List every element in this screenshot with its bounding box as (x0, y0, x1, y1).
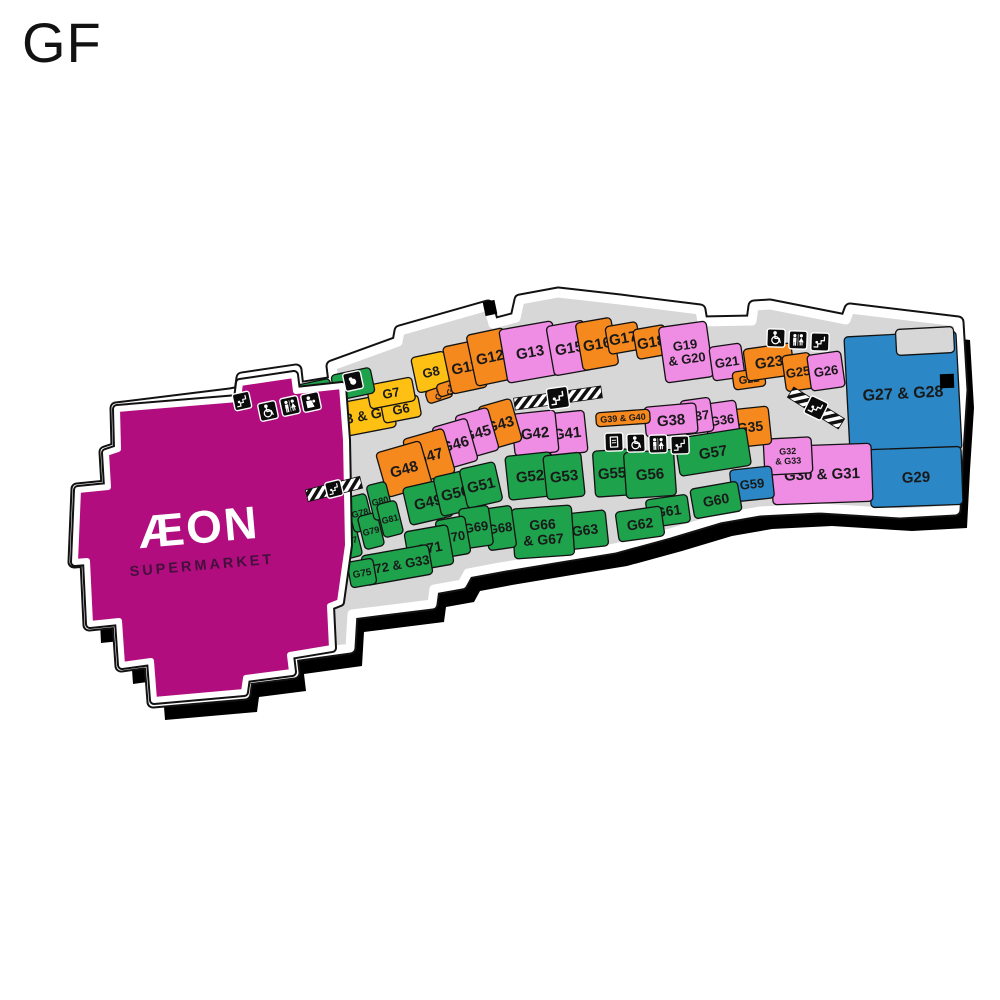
unit-label-G38: G38 (656, 411, 686, 430)
escalator-icon (324, 479, 343, 498)
unit-label-G29: G29 (902, 469, 931, 487)
wheelchair-icon (767, 329, 786, 348)
unit-G38: G38 (644, 403, 698, 437)
unit-G66-G67: G66& G67 (511, 505, 574, 559)
aeon-logo-text: ÆON (136, 496, 261, 558)
wheelchair-icon (627, 434, 646, 453)
entrance-mark (940, 374, 954, 388)
floor-map: G1G2G3 & G5G6G7G8G9G10G11G12G13G15G16G17… (0, 0, 1000, 1000)
unit-label-G52: G52 (515, 467, 545, 487)
aeon-logo: ÆONSUPERMARKET (124, 495, 275, 580)
unit-label-G56: G56 (635, 465, 664, 484)
escalator-icon (811, 333, 830, 352)
escalator-icon (546, 386, 570, 410)
unit-label-G53: G53 (549, 467, 579, 487)
unit-label-G63: G63 (571, 521, 599, 540)
escalator-icon (232, 391, 252, 411)
unit-label-G55: G55 (597, 464, 626, 483)
floor-plan-page: GF G1G2G3 & G5G6G7G8G9G10G11G12G13G15G16… (0, 0, 1000, 1000)
unit-notch (895, 327, 954, 356)
unit-label-G42: G42 (520, 424, 550, 444)
unit-label-G59: G59 (739, 475, 765, 492)
unit-G75: G75 (347, 558, 377, 588)
wheelchair-icon (257, 400, 278, 421)
unit-G56: G56 (623, 449, 676, 498)
toilets-icon (649, 435, 668, 454)
unit-G53: G53 (543, 452, 585, 500)
water-fountain-icon (605, 433, 624, 452)
escalator-icon (671, 436, 690, 455)
unit-G19-G20: G19& G20 (658, 321, 713, 383)
nursing-room-icon (300, 391, 321, 412)
nursery-icon (342, 370, 363, 391)
unit-G26: G26 (807, 351, 846, 391)
toilets-icon (789, 331, 808, 350)
unit-G62: G62 (615, 506, 665, 542)
unit-G29: G29 (869, 446, 963, 507)
unit-G39-G40: G39 & G40 (596, 409, 651, 427)
toilets-icon (279, 395, 300, 416)
unit-shape-notch (895, 327, 954, 356)
